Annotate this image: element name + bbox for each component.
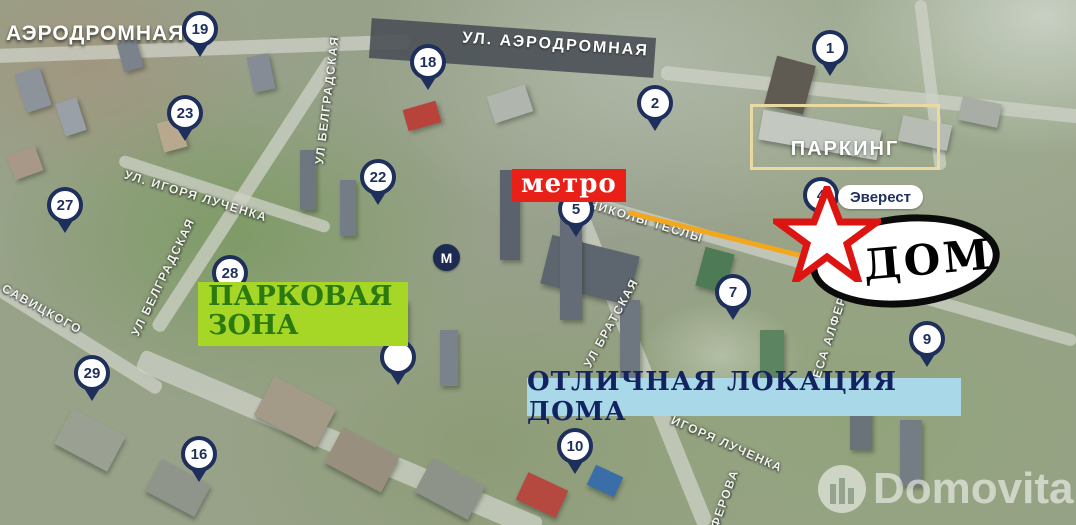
house-star-icon [773,186,881,282]
map-pin-9: 9 [909,321,945,367]
map-screenshot: АЭРОДРОМНАЯ УЛ. АЭРОДРОМНАЯ УЛ БЕЛГРАДСК… [0,0,1076,525]
watermark: Domovita [818,464,1073,514]
parking-label: ПАРКИНГ [791,138,900,161]
building-block [440,330,458,386]
map-pin-1: 1 [812,30,848,76]
pin-number: 2 [637,85,673,121]
map-pin-29: 29 [74,355,110,401]
map-pin-2: 2 [637,85,673,131]
park-zone-line1: ПАРКОВАЯ [208,283,408,312]
house-label: ДОМ [861,229,994,289]
map-pin-22: 22 [360,159,396,205]
map-pin-27: 27 [47,187,83,233]
map-pin-16: 16 [181,436,217,482]
domovita-logo-icon [818,465,866,513]
watermark-text: Domovita [873,464,1073,514]
pin-number: 22 [360,159,396,195]
pin-number: 29 [74,355,110,391]
park-zone-box: ПАРКОВАЯ ЗОНА [198,282,408,346]
pin-number: 9 [909,321,945,357]
pin-number: 1 [812,30,848,66]
map-pin-23: 23 [167,95,203,141]
metro-sign: метро [512,169,626,202]
map-pin-10: 10 [557,428,593,474]
park-zone-line2: ЗОНА [208,312,408,341]
map-pin-19: 19 [182,11,218,57]
pin-number: 16 [181,436,217,472]
pin-number: 10 [557,428,593,464]
district-label: АЭРОДРОМНАЯ [6,22,184,46]
parking-outline-box: ПАРКИНГ [750,104,940,170]
map-pin-7: 7 [715,274,751,320]
pin-number: 7 [715,274,751,310]
building-block [340,180,356,236]
metro-station-icon: М [433,244,460,271]
location-banner: ОТЛИЧНАЯ ЛОКАЦИЯ ДОМА [527,378,961,416]
pin-number: 18 [410,44,446,80]
pin-number: 19 [182,11,218,47]
pin-number: 27 [47,187,83,223]
map-pin-18: 18 [410,44,446,90]
pin-number: 23 [167,95,203,131]
